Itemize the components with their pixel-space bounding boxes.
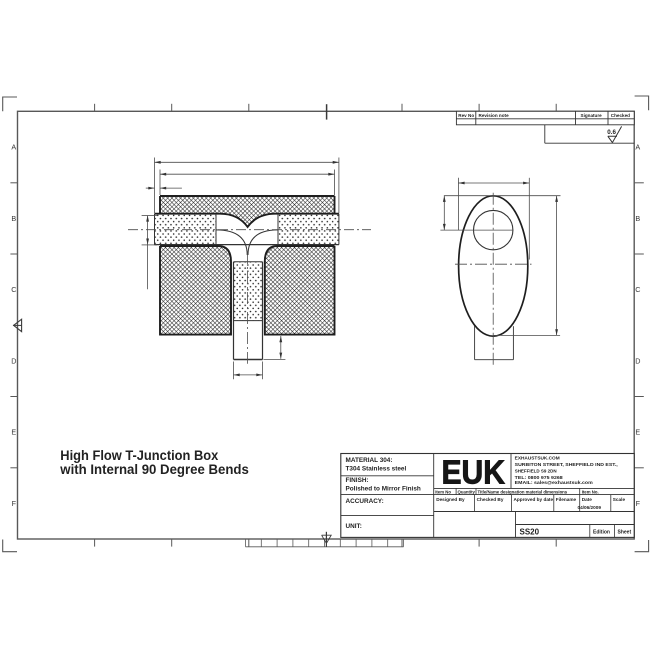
svg-text:SURBITON STREET, SHEFFIELD IND: SURBITON STREET, SHEFFIELD IND EST., <box>515 462 618 467</box>
svg-text:Designed By: Designed By <box>436 497 465 502</box>
svg-text:Approved by date: Approved by date <box>514 497 554 502</box>
svg-text:A: A <box>11 143 16 152</box>
svg-text:E: E <box>635 428 640 437</box>
svg-text:Checked: Checked <box>611 113 630 118</box>
svg-text:Item No.: Item No. <box>582 489 599 494</box>
svg-text:B: B <box>635 214 640 223</box>
svg-text:Polished to Mirror Finish: Polished to Mirror Finish <box>346 486 421 493</box>
svg-text:Item No: Item No <box>435 489 451 494</box>
svg-text:SS20: SS20 <box>520 527 540 536</box>
svg-text:Rev No: Rev No <box>458 113 474 118</box>
svg-text:A: A <box>635 143 640 152</box>
svg-text:Quantity: Quantity <box>458 489 476 494</box>
svg-text:MATERIAL 304:: MATERIAL 304: <box>346 457 393 464</box>
svg-text:FINISH:: FINISH: <box>346 477 369 484</box>
svg-text:Filename: Filename <box>556 497 577 502</box>
svg-text:Title/Name designation materia: Title/Name designation material dimensio… <box>478 489 568 494</box>
svg-text:Scale: Scale <box>613 497 626 502</box>
svg-text:Revision note: Revision note <box>479 113 510 118</box>
svg-text:D: D <box>635 356 640 365</box>
svg-text:EMAIL: sales@exhaustsuk.com: EMAIL: sales@exhaustsuk.com <box>515 480 593 485</box>
svg-text:EUK: EUK <box>442 455 506 492</box>
svg-text:04/06/2009: 04/06/2009 <box>578 505 602 510</box>
svg-text:UNIT:: UNIT: <box>346 523 362 530</box>
svg-text:T304 Stainless steel: T304 Stainless steel <box>346 465 407 472</box>
svg-text:SHEFFIELD S9 2DN: SHEFFIELD S9 2DN <box>515 469 558 474</box>
svg-text:with Internal 90 Degree Bends: with Internal 90 Degree Bends <box>59 461 249 477</box>
svg-text:ACCURACY:: ACCURACY: <box>346 498 384 505</box>
svg-text:Checked By: Checked By <box>477 497 504 502</box>
svg-text:B: B <box>11 214 16 223</box>
svg-text:E: E <box>11 428 16 437</box>
svg-text:EXHAUSTSUK.COM: EXHAUSTSUK.COM <box>515 456 560 461</box>
svg-text:Signature: Signature <box>581 113 603 118</box>
svg-text:C: C <box>635 285 640 294</box>
svg-text:F: F <box>12 499 17 508</box>
svg-text:Edition: Edition <box>593 530 610 536</box>
svg-text:Sheet: Sheet <box>618 530 632 536</box>
svg-text:Date: Date <box>582 497 593 502</box>
svg-text:D: D <box>11 356 16 365</box>
svg-text:F: F <box>636 499 641 508</box>
svg-text:C: C <box>11 285 16 294</box>
svg-text:0.6: 0.6 <box>607 129 616 136</box>
